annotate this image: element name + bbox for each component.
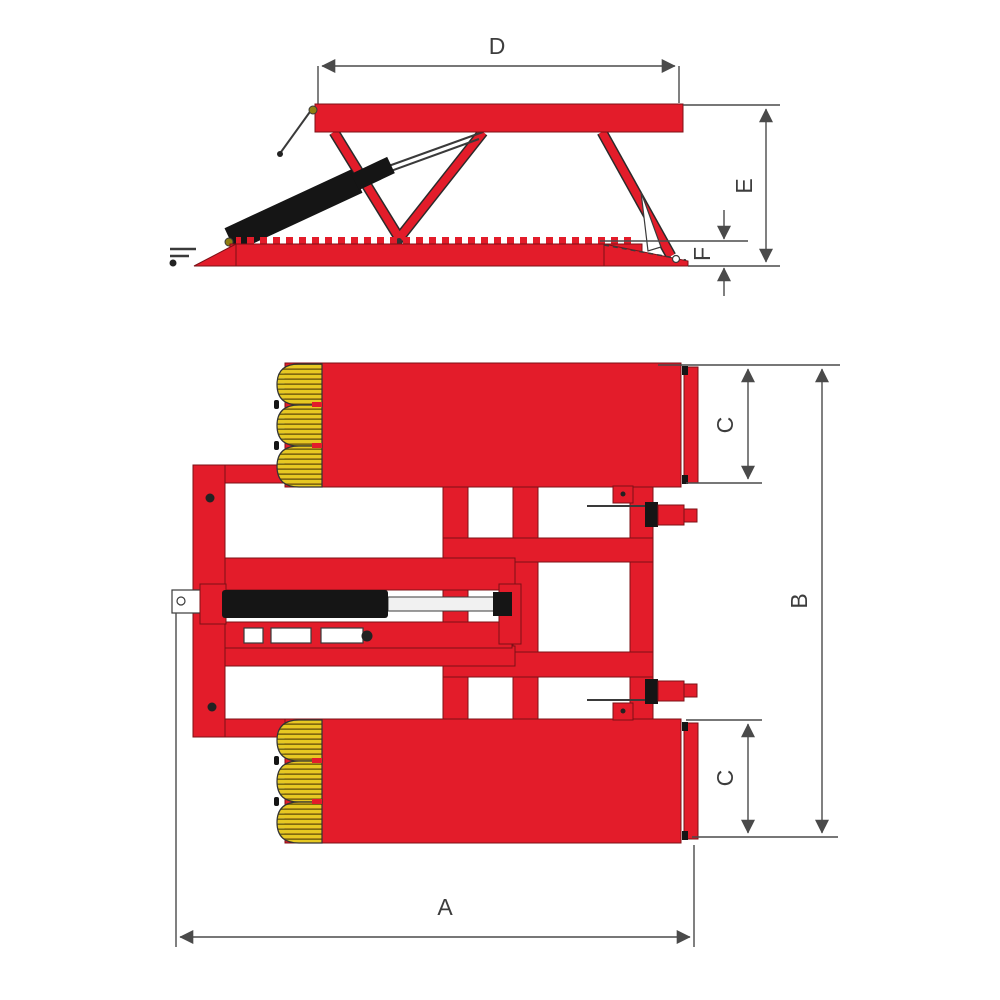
bolt bbox=[208, 703, 217, 712]
piston-rod bbox=[388, 597, 496, 611]
rod-collar bbox=[493, 592, 512, 616]
rubber-pad bbox=[277, 405, 322, 446]
dim-label-a: A bbox=[437, 894, 453, 920]
platform-bottom-plan bbox=[274, 719, 698, 843]
platform-deck bbox=[285, 719, 681, 843]
lever-knob bbox=[277, 151, 283, 157]
slotted-bar bbox=[225, 622, 512, 648]
dimension-e: E bbox=[683, 105, 780, 266]
ramp-pivot bbox=[673, 256, 680, 263]
dim-label-f: F bbox=[689, 247, 715, 261]
platform-left-pivot bbox=[309, 106, 317, 114]
platform-deck bbox=[285, 363, 681, 487]
rubber-pad bbox=[277, 720, 322, 761]
rubber-pad bbox=[277, 761, 322, 802]
technical-drawing-canvas: D bbox=[0, 0, 1000, 1000]
cylinder-body-plan bbox=[222, 590, 388, 618]
dim-label-e: E bbox=[731, 178, 757, 193]
rubber-pad bbox=[277, 446, 322, 487]
rubber-pad bbox=[277, 364, 322, 405]
rubber-pads bbox=[274, 720, 322, 843]
plan-view: C C B A bbox=[172, 363, 840, 947]
fitting-collar bbox=[645, 502, 658, 527]
fitting-nipple bbox=[684, 509, 697, 522]
platform-side-rail bbox=[684, 367, 698, 483]
dimension-b: B bbox=[692, 369, 838, 837]
cylinder-body bbox=[230, 181, 357, 240]
platform-side bbox=[315, 104, 683, 132]
platform-side-rail bbox=[684, 723, 698, 839]
rubber-pad bbox=[277, 802, 322, 843]
drive-on-ramp-left bbox=[194, 244, 236, 266]
release-lever bbox=[277, 109, 312, 157]
tow-bracket-hole bbox=[177, 597, 185, 605]
fitting-body bbox=[658, 505, 684, 525]
dim-label-d: D bbox=[489, 33, 506, 59]
bolt bbox=[206, 494, 215, 503]
side-elevation-view: D bbox=[170, 33, 781, 296]
platform-top-plan bbox=[274, 363, 698, 487]
dim-label-c-top: C bbox=[712, 417, 738, 434]
fitting-nipple bbox=[684, 684, 697, 697]
tow-hook bbox=[170, 249, 196, 256]
tread-teeth bbox=[236, 237, 636, 244]
tow-hook-tip bbox=[170, 260, 177, 267]
dimension-a: A bbox=[180, 845, 694, 947]
base-bar bbox=[230, 244, 642, 266]
fitting-collar bbox=[645, 679, 658, 704]
bolt bbox=[362, 631, 373, 642]
scissor-lift-diagram: D bbox=[0, 0, 1000, 1000]
fitting-body bbox=[658, 681, 684, 701]
dim-label-c-bottom: C bbox=[712, 770, 738, 787]
frame-cross-bar-left bbox=[225, 646, 515, 666]
cylinder-mount-plate bbox=[225, 558, 515, 590]
dim-label-b: B bbox=[786, 593, 812, 608]
dimension-d: D bbox=[318, 33, 679, 104]
rubber-pads bbox=[274, 364, 322, 487]
